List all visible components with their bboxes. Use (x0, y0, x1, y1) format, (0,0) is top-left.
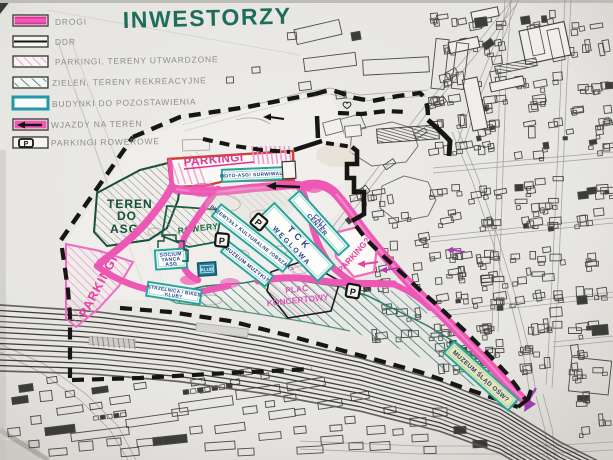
svg-text:P: P (24, 141, 29, 148)
svg-text:ASG: ASG (165, 261, 177, 268)
svg-text:KLUB: KLUB (201, 267, 215, 273)
svg-text:DO: DO (117, 209, 137, 223)
svg-text:P: P (218, 236, 225, 246)
svg-text:INWESTORZY: INWESTORZY (122, 3, 292, 33)
svg-text:PARKINGI ROWEROWE: PARKINGI ROWEROWE (51, 136, 160, 148)
svg-text:DROGI: DROGI (55, 16, 87, 27)
svg-text:WJAZDY NA TEREN: WJAZDY NA TEREN (51, 118, 143, 130)
svg-text:DDR: DDR (55, 37, 76, 47)
